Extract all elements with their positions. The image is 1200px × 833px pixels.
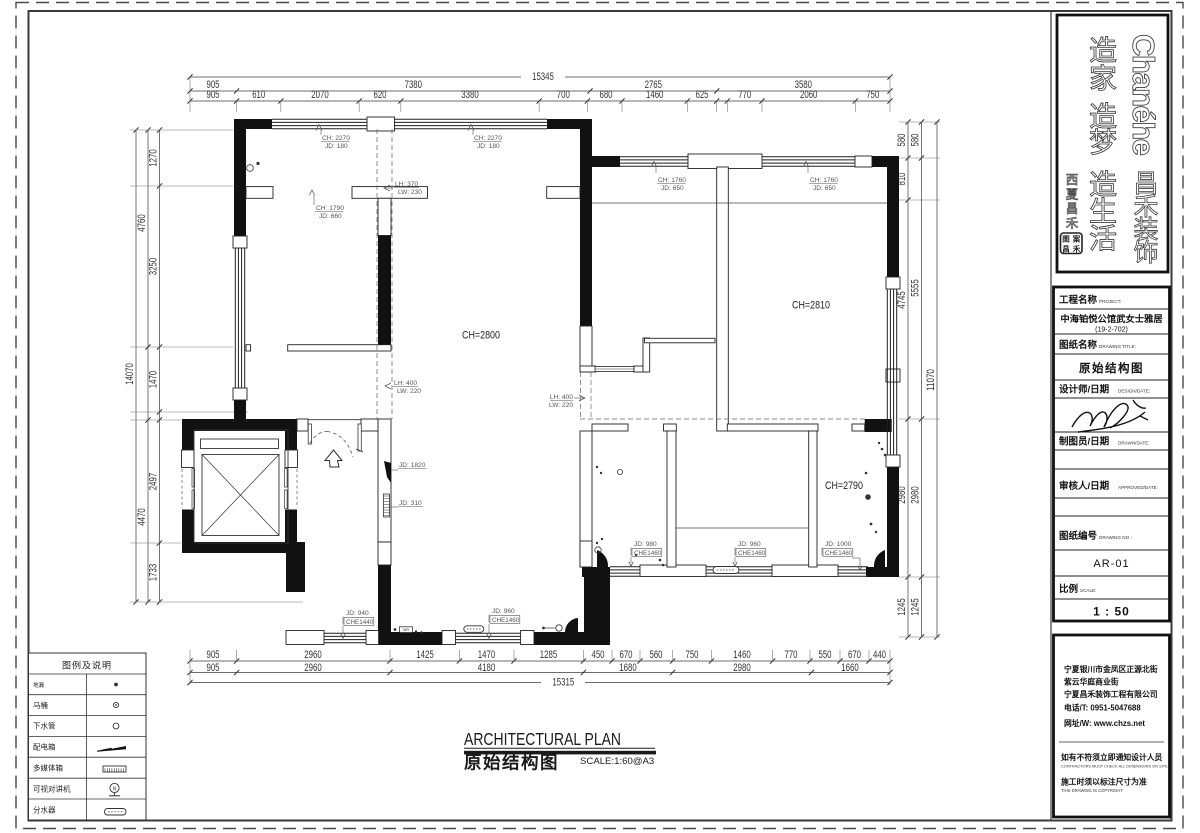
svg-text:JD: 180: JD: 180 bbox=[477, 143, 500, 150]
svg-text:图: 图 bbox=[1062, 235, 1070, 244]
svg-text:DRAWING TITLE:: DRAWING TITLE: bbox=[1099, 344, 1136, 349]
svg-text:620: 620 bbox=[374, 89, 387, 101]
svg-text:625: 625 bbox=[696, 89, 709, 101]
svg-text:夏: 夏 bbox=[1066, 188, 1079, 202]
svg-text:4745: 4745 bbox=[896, 291, 908, 308]
svg-text:如有不符须立即通知设计人员: 如有不符须立即通知设计人员 bbox=[1061, 752, 1163, 762]
svg-text:700: 700 bbox=[557, 89, 570, 101]
svg-text:DESIGN/DATE:: DESIGN/DATE: bbox=[1118, 389, 1150, 394]
svg-text:多媒体箱: 多媒体箱 bbox=[33, 763, 63, 773]
svg-text:网址/W: www.chzs.net: 网址/W: www.chzs.net bbox=[1064, 718, 1145, 728]
svg-text:JD: 960: JD: 960 bbox=[738, 541, 761, 548]
svg-text:紫云华庭商业街: 紫云华庭商业街 bbox=[1064, 677, 1119, 687]
svg-text:CH: 2270: CH: 2270 bbox=[322, 135, 350, 142]
svg-text:1245: 1245 bbox=[910, 598, 922, 615]
svg-text:施工时须以标注尺寸为准: 施工时须以标注尺寸为准 bbox=[1061, 777, 1147, 787]
svg-text:750: 750 bbox=[866, 89, 879, 101]
svg-text:2980: 2980 bbox=[733, 662, 750, 674]
svg-text:LH: 400: LH: 400 bbox=[394, 380, 417, 387]
svg-text:1460: 1460 bbox=[646, 89, 663, 101]
svg-text:1460: 1460 bbox=[733, 649, 750, 661]
svg-text:THIS DRAWING IS COPYRIGHT: THIS DRAWING IS COPYRIGHT bbox=[1061, 788, 1123, 793]
svg-text:电话/T: 0951-5047688: 电话/T: 0951-5047688 bbox=[1064, 703, 1141, 713]
svg-text:CHE1460: CHE1460 bbox=[634, 550, 662, 557]
svg-text:可视对讲机: 可视对讲机 bbox=[33, 783, 71, 793]
svg-text:1733: 1733 bbox=[148, 564, 160, 581]
svg-text:4760: 4760 bbox=[136, 214, 148, 231]
svg-text:1470: 1470 bbox=[148, 371, 160, 388]
svg-text:770: 770 bbox=[785, 649, 798, 661]
svg-text:PROJECT:: PROJECT: bbox=[1099, 299, 1121, 304]
svg-text:JD: 980: JD: 980 bbox=[634, 541, 657, 548]
svg-text:Chanéhe: Chanéhe bbox=[1126, 34, 1161, 156]
svg-text:JD: 960: JD: 960 bbox=[492, 608, 515, 615]
svg-text:750: 750 bbox=[686, 649, 699, 661]
svg-text:680: 680 bbox=[600, 89, 613, 101]
svg-text:CH=2800: CH=2800 bbox=[462, 330, 500, 342]
svg-text:670: 670 bbox=[848, 649, 861, 661]
svg-text:配电箱: 配电箱 bbox=[33, 742, 56, 752]
svg-text:CH: 1760: CH: 1760 bbox=[810, 177, 838, 184]
svg-text:JD: 180: JD: 180 bbox=[325, 143, 348, 150]
svg-text:905: 905 bbox=[207, 649, 220, 661]
svg-text:14070: 14070 bbox=[124, 363, 136, 385]
svg-text:580: 580 bbox=[896, 134, 908, 147]
svg-text:审核人/日期: 审核人/日期 bbox=[1059, 480, 1109, 492]
svg-text:设计师/日期: 设计师/日期 bbox=[1059, 384, 1109, 396]
svg-text:DRAWN/DATE:: DRAWN/DATE: bbox=[1118, 441, 1150, 446]
svg-text:中海铂悦公馆武女士雅居: 中海铂悦公馆武女士雅居 bbox=[1060, 313, 1162, 324]
svg-text:1245: 1245 bbox=[896, 598, 908, 615]
svg-text:工程名称: 工程名称 bbox=[1059, 294, 1098, 306]
svg-text:1 : 50: 1 : 50 bbox=[1093, 605, 1130, 619]
svg-text:JD: 1820: JD: 1820 bbox=[399, 462, 426, 469]
svg-text:西: 西 bbox=[1066, 173, 1079, 187]
svg-text:家: 家 bbox=[1089, 63, 1117, 94]
svg-text:JD: 310: JD: 310 bbox=[399, 500, 422, 507]
svg-text:3250: 3250 bbox=[148, 258, 160, 275]
svg-text:图例及说明: 图例及说明 bbox=[62, 660, 112, 671]
svg-text:1285: 1285 bbox=[540, 649, 557, 661]
svg-text:梦: 梦 bbox=[1089, 127, 1117, 158]
svg-text:15315: 15315 bbox=[552, 677, 574, 689]
svg-text:CHE1460: CHE1460 bbox=[492, 617, 520, 624]
svg-text:JD: 1000: JD: 1000 bbox=[825, 541, 852, 548]
svg-text:1425: 1425 bbox=[416, 649, 433, 661]
svg-text:560: 560 bbox=[650, 649, 663, 661]
svg-text:3380: 3380 bbox=[461, 89, 478, 101]
svg-text:4180: 4180 bbox=[478, 662, 495, 674]
svg-text:580: 580 bbox=[910, 134, 922, 147]
svg-text:610: 610 bbox=[252, 89, 265, 101]
svg-text:ARCHITECTURAL PLAN: ARCHITECTURAL PLAN bbox=[464, 729, 621, 749]
svg-text:CH: 1760: CH: 1760 bbox=[658, 177, 686, 184]
svg-text:昌: 昌 bbox=[1062, 244, 1070, 254]
svg-text:1270: 1270 bbox=[148, 149, 160, 166]
svg-text:JD: 940: JD: 940 bbox=[346, 610, 369, 617]
svg-text:宁夏昌禾装饰工程有限公司: 宁夏昌禾装饰工程有限公司 bbox=[1064, 689, 1158, 699]
svg-text:N: N bbox=[113, 787, 117, 793]
svg-text:活: 活 bbox=[1089, 223, 1117, 254]
svg-text:550: 550 bbox=[819, 649, 832, 661]
svg-text:2960: 2960 bbox=[304, 662, 321, 674]
svg-text:905: 905 bbox=[207, 89, 220, 101]
svg-text:JD: 650: JD: 650 bbox=[661, 185, 684, 192]
svg-text:LW: 220: LW: 220 bbox=[549, 402, 573, 409]
svg-text:SCALE:1:60@A3: SCALE:1:60@A3 bbox=[580, 756, 654, 767]
svg-text:JD: 650: JD: 650 bbox=[813, 185, 836, 192]
svg-text:4470: 4470 bbox=[136, 508, 148, 525]
svg-text:CH=2810: CH=2810 bbox=[792, 300, 830, 312]
svg-text:分水器: 分水器 bbox=[33, 804, 56, 814]
svg-text:450: 450 bbox=[592, 649, 605, 661]
svg-text:CHE1460: CHE1460 bbox=[825, 550, 853, 557]
svg-text:1470: 1470 bbox=[478, 649, 495, 661]
svg-text:昌: 昌 bbox=[1066, 202, 1079, 216]
svg-text:2960: 2960 bbox=[304, 649, 321, 661]
svg-text:CH: 1790: CH: 1790 bbox=[316, 205, 344, 212]
svg-text:宁夏银川市金凤区正源北街: 宁夏银川市金凤区正源北街 bbox=[1064, 664, 1158, 674]
svg-text:(19-2-702): (19-2-702) bbox=[1095, 327, 1128, 334]
svg-text:禾: 禾 bbox=[1073, 244, 1081, 254]
svg-text:比例: 比例 bbox=[1059, 583, 1078, 595]
svg-text:1680: 1680 bbox=[619, 662, 636, 674]
svg-text:DRAWING NO :: DRAWING NO : bbox=[1099, 535, 1132, 540]
svg-text:图纸名称: 图纸名称 bbox=[1059, 339, 1098, 351]
svg-text:CH: 2270: CH: 2270 bbox=[474, 135, 502, 142]
svg-text:LH: 400: LH: 400 bbox=[550, 394, 573, 401]
svg-text:11070: 11070 bbox=[925, 369, 937, 391]
svg-text:制图员/日期: 制图员/日期 bbox=[1059, 436, 1109, 448]
svg-text:7380: 7380 bbox=[405, 79, 422, 91]
svg-text:2980: 2980 bbox=[910, 486, 922, 503]
svg-text:905: 905 bbox=[207, 662, 220, 674]
svg-text:15345: 15345 bbox=[532, 71, 554, 83]
svg-text:原始结构图: 原始结构图 bbox=[464, 753, 559, 773]
svg-text:CONTRACTORS MUST CHECK ALL DIM: CONTRACTORS MUST CHECK ALL DIMENSIONS ON… bbox=[1061, 764, 1168, 769]
svg-text:JD: 660: JD: 660 bbox=[319, 213, 342, 220]
svg-text:马桶: 马桶 bbox=[33, 700, 48, 710]
svg-text:案: 案 bbox=[1072, 234, 1081, 244]
svg-text:LH: 370: LH: 370 bbox=[395, 181, 418, 188]
svg-text:AR-01: AR-01 bbox=[1093, 558, 1129, 570]
svg-text:饰: 饰 bbox=[1133, 239, 1158, 267]
svg-text:2060: 2060 bbox=[800, 89, 817, 101]
svg-text:670: 670 bbox=[620, 649, 633, 661]
svg-text:图纸编号: 图纸编号 bbox=[1059, 530, 1098, 542]
svg-text:下水管: 下水管 bbox=[33, 721, 56, 731]
svg-text:5555: 5555 bbox=[910, 279, 922, 296]
svg-text:LW: 230: LW: 230 bbox=[398, 189, 422, 196]
svg-text:造: 造 bbox=[1089, 35, 1117, 66]
svg-text:CHE1460: CHE1460 bbox=[738, 550, 766, 557]
svg-text:APPROVED/DATE:: APPROVED/DATE: bbox=[1118, 485, 1158, 490]
svg-text:SCALE:: SCALE: bbox=[1080, 588, 1096, 593]
svg-text:CHE1440: CHE1440 bbox=[346, 619, 374, 626]
svg-text:440: 440 bbox=[873, 649, 886, 661]
svg-text:2497: 2497 bbox=[148, 473, 160, 490]
svg-text:WR: WR bbox=[403, 628, 410, 632]
svg-text:原始结构图: 原始结构图 bbox=[1079, 361, 1144, 375]
svg-text:770: 770 bbox=[738, 89, 751, 101]
svg-text:1660: 1660 bbox=[841, 662, 858, 674]
svg-text:CH=2790: CH=2790 bbox=[825, 480, 863, 492]
svg-text:2070: 2070 bbox=[311, 89, 328, 101]
svg-text:禾: 禾 bbox=[1066, 217, 1079, 231]
svg-text:LW: 220: LW: 220 bbox=[397, 388, 421, 395]
svg-text:地漏: 地漏 bbox=[33, 681, 45, 689]
